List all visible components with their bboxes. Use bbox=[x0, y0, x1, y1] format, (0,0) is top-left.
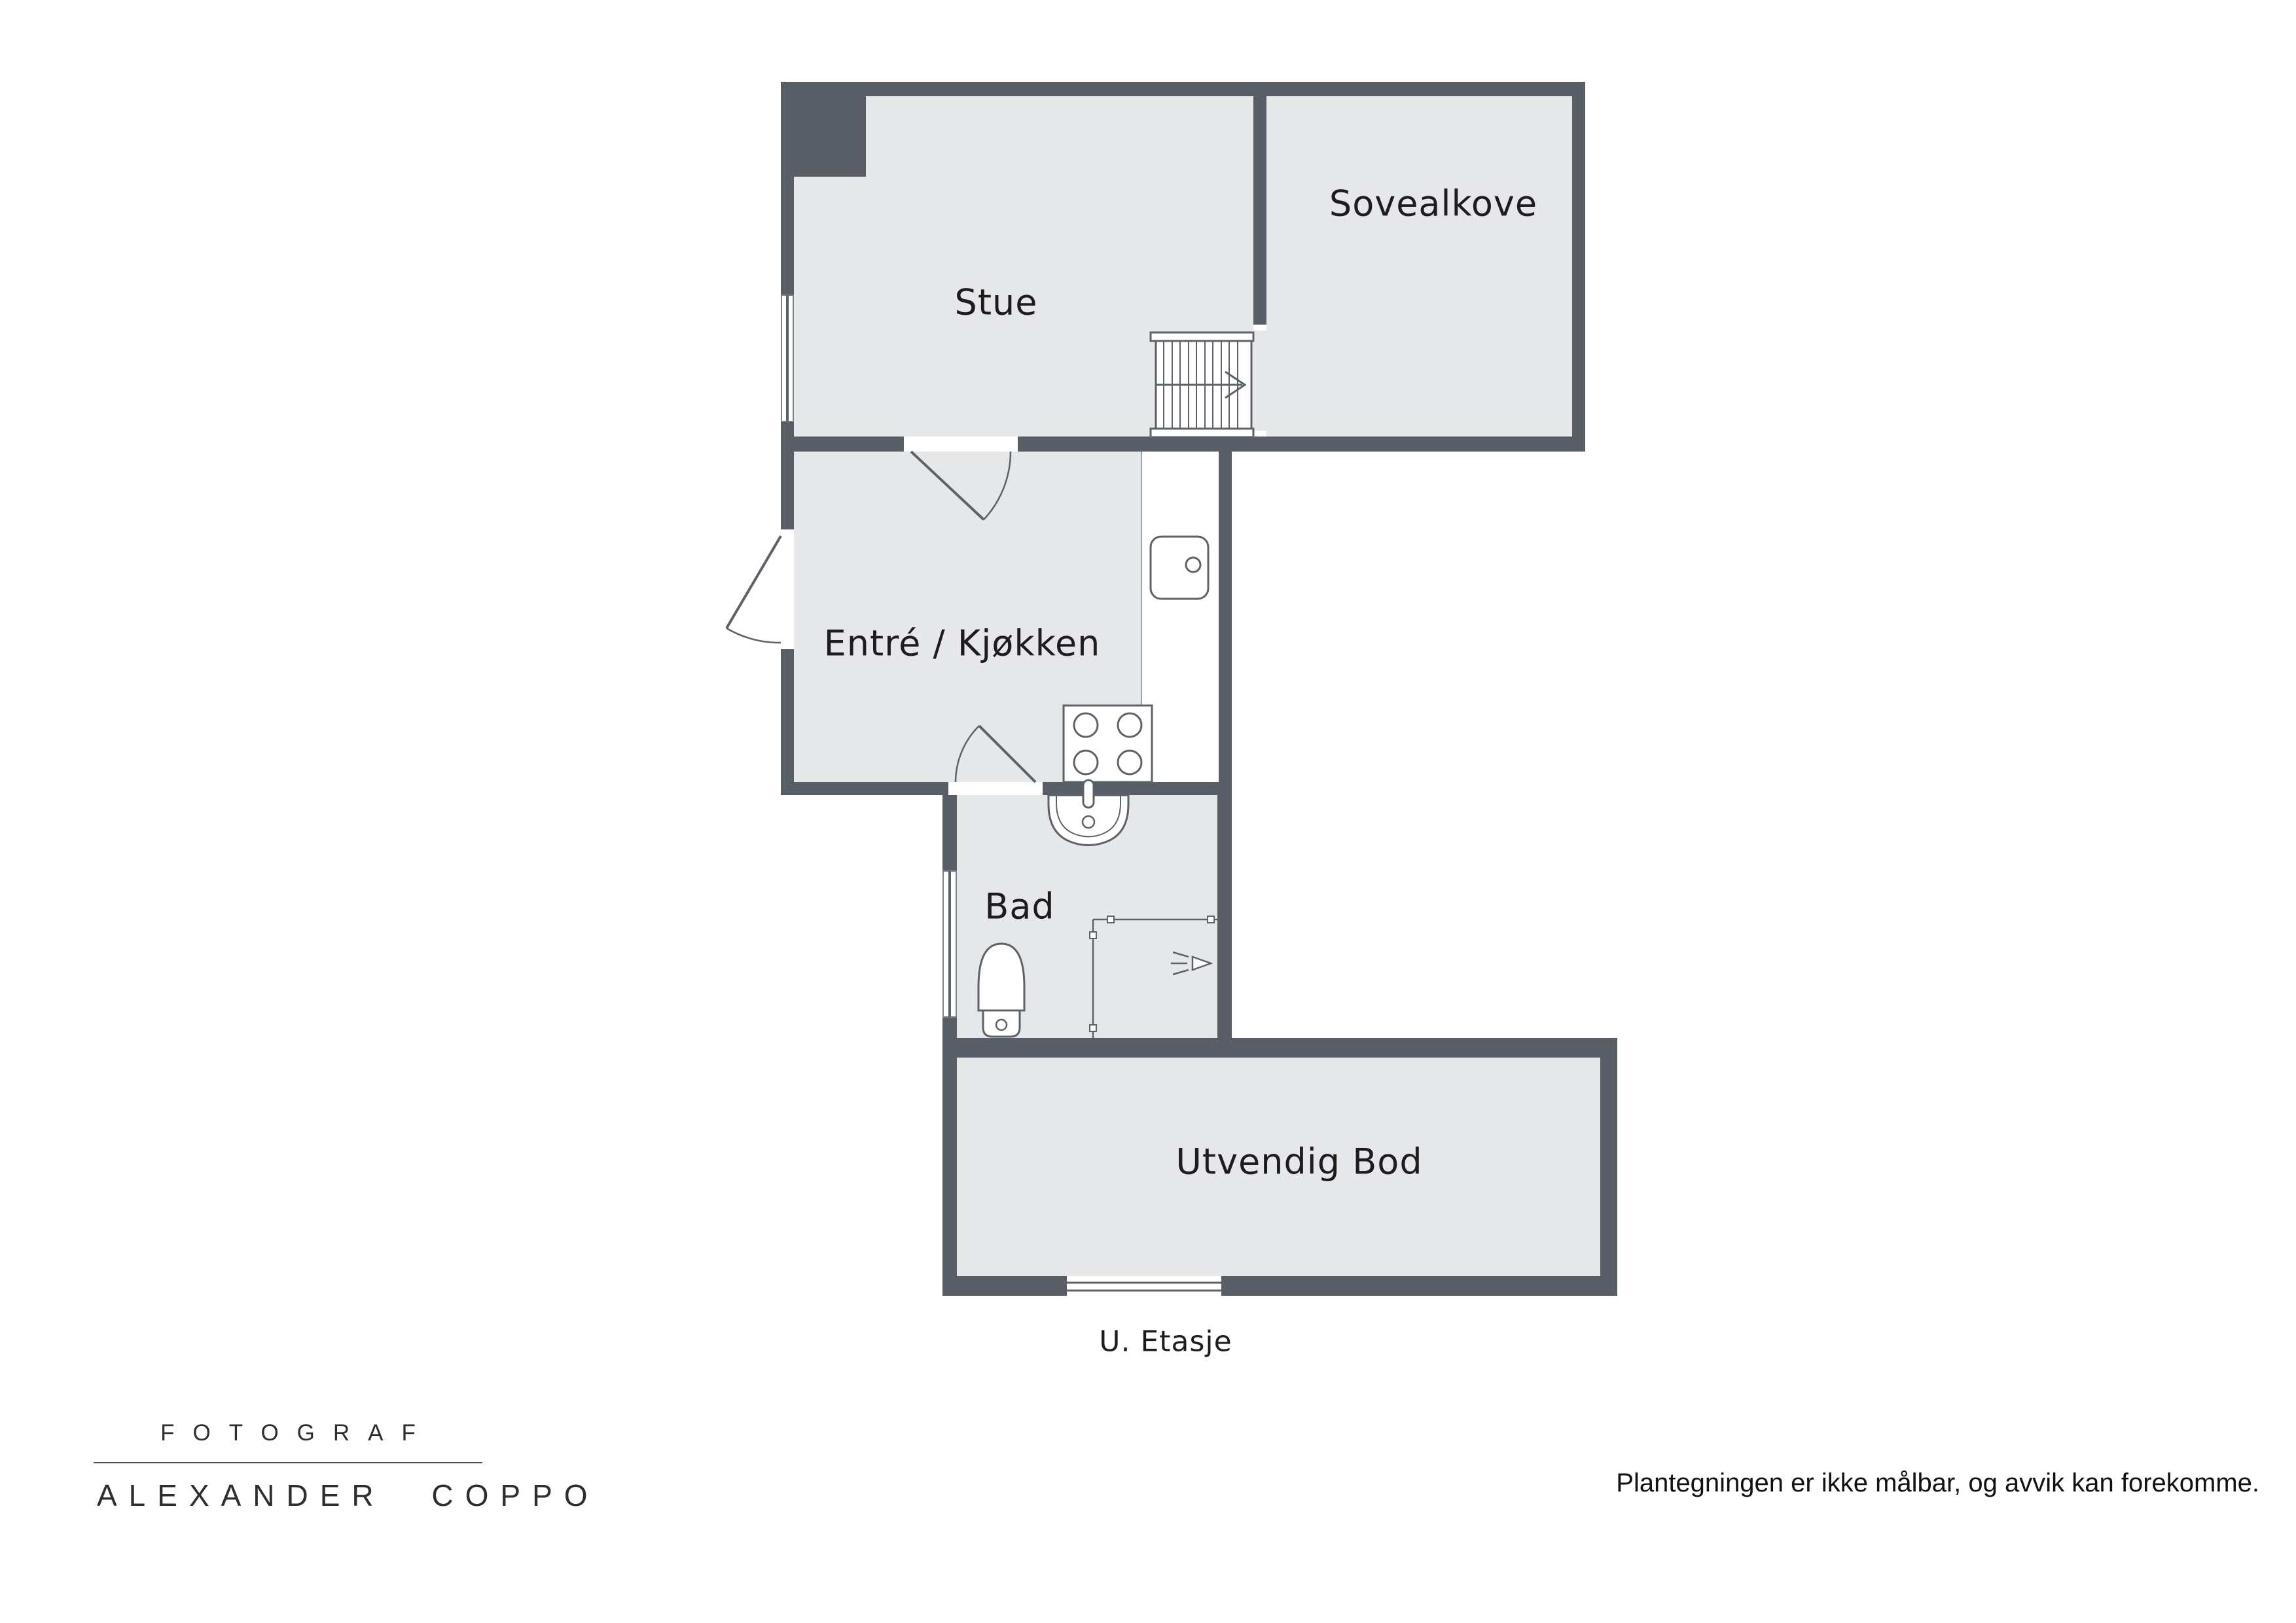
door-jamb bbox=[1011, 437, 1018, 452]
floor-plan-page: Stue Sovealkove Entré / Kjøkken Bad Utve… bbox=[0, 0, 2296, 1623]
wall-bod-right bbox=[1600, 1038, 1617, 1296]
photographer-logo: FOTOGRAF ALEXANDER COPPO bbox=[85, 1420, 491, 1513]
door-jamb bbox=[1035, 782, 1043, 795]
entry-door-opening bbox=[781, 536, 794, 643]
door-jamb bbox=[904, 437, 911, 452]
kitchen-counter bbox=[1141, 452, 1219, 782]
bod-door-opening bbox=[1067, 1276, 1221, 1296]
wall-kitchen-right bbox=[1217, 452, 1232, 1058]
stair-passage-floor bbox=[1253, 330, 1266, 437]
logo-divider-line bbox=[94, 1462, 482, 1463]
logo-name: ALEXANDER COPPO bbox=[85, 1478, 491, 1513]
window-opening-stue bbox=[781, 294, 794, 422]
room-label-entre-kjokken: Entré / Kjøkken bbox=[824, 623, 1101, 664]
room-label-utvendig-bod: Utvendig Bod bbox=[1175, 1141, 1422, 1183]
room-label-bad: Bad bbox=[984, 886, 1054, 927]
wall-end-cap bbox=[1253, 431, 1266, 437]
logo-profession: FOTOGRAF bbox=[85, 1420, 491, 1446]
room-label-stue: Stue bbox=[955, 282, 1038, 323]
floor-level-label: U. Etasje bbox=[1099, 1325, 1232, 1359]
window-opening-bad bbox=[942, 870, 957, 1018]
wall-exterior-top bbox=[781, 82, 1585, 96]
wall-bod-bottom bbox=[942, 1276, 1617, 1296]
wall-exterior-right-sovealkove bbox=[1572, 82, 1585, 452]
door-jamb bbox=[781, 643, 794, 649]
disclaimer-text: Plantegningen er ikke målbar, og avvik k… bbox=[1566, 1469, 2259, 1498]
door-swing-icon bbox=[726, 536, 781, 643]
wall-end-cap bbox=[1253, 325, 1266, 330]
room-floor-sovealkove bbox=[1266, 96, 1572, 437]
bad-door-opening bbox=[956, 782, 1035, 795]
wall-bad-bod-horizontal bbox=[942, 1038, 1617, 1058]
wall-mid-horizontal bbox=[781, 437, 1585, 452]
door-jamb bbox=[948, 782, 956, 795]
wall-divider-stue-sovealkove bbox=[1253, 82, 1266, 330]
stue-entre-door-opening bbox=[911, 437, 1011, 452]
room-label-sovealkove: Sovealkove bbox=[1329, 183, 1537, 224]
door-jamb bbox=[781, 529, 794, 536]
